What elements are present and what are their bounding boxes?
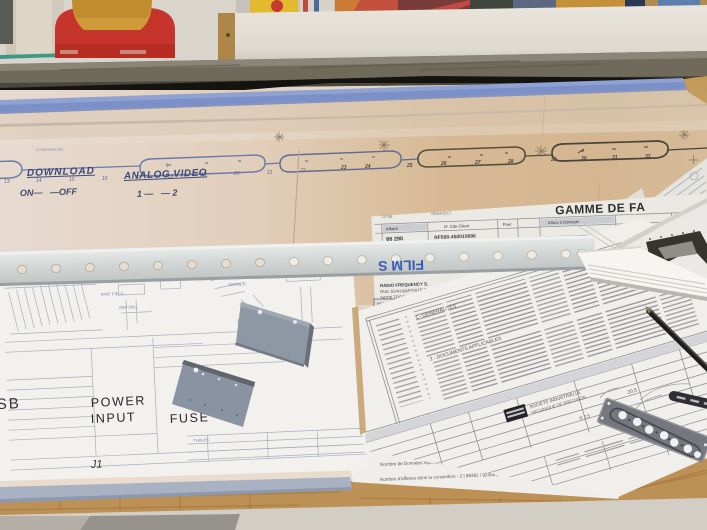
svg-text:J1: J1: [90, 458, 103, 471]
svg-text:25: 25: [406, 163, 413, 169]
svg-text:ON— —OFF: ON— —OFF: [20, 186, 78, 198]
svg-text:32: 32: [645, 154, 651, 160]
svg-text:30: 30: [581, 156, 587, 162]
svg-text:16: 16: [102, 176, 108, 182]
svg-text:14: 14: [36, 178, 42, 184]
svg-text:09/04/2017: 09/04/2017: [431, 210, 452, 216]
svg-text:INPUT: INPUT: [90, 410, 136, 426]
svg-text:FILM S: FILM S: [378, 257, 424, 274]
svg-text:N° Cde Client: N° Cde Client: [444, 223, 470, 229]
svg-text:26: 26: [440, 161, 447, 167]
svg-text:27: 27: [474, 160, 481, 166]
svg-text:THALES: THALES: [193, 437, 209, 443]
svg-text:PART FIELD: PART FIELD: [101, 291, 124, 297]
svg-text:23: 23: [340, 165, 347, 171]
svg-text:1 — — 2: 1 — — 2: [137, 188, 178, 199]
svg-text:Affairé: Affairé: [386, 226, 399, 231]
svg-text:29: 29: [550, 157, 557, 163]
svg-text:28: 28: [507, 159, 514, 165]
svg-text:J3756: J3756: [381, 214, 393, 219]
svg-text:13: 13: [4, 179, 10, 185]
svg-text:31: 31: [612, 155, 618, 161]
svg-text:POWER: POWER: [90, 394, 146, 410]
svg-text:REF 2041: REF 2041: [119, 304, 138, 310]
svg-text:21: 21: [266, 170, 273, 176]
svg-text:15: 15: [69, 177, 75, 183]
svg-text:Pour: Pour: [503, 222, 513, 227]
svg-text:DETAIL A: DETAIL A: [228, 281, 246, 287]
svg-text:22: 22: [299, 168, 306, 174]
svg-text:G7040586AA-002: G7040586AA-002: [36, 148, 63, 152]
svg-text:SB: SB: [0, 395, 21, 413]
svg-text:20: 20: [233, 171, 240, 177]
svg-text:24: 24: [364, 164, 371, 170]
